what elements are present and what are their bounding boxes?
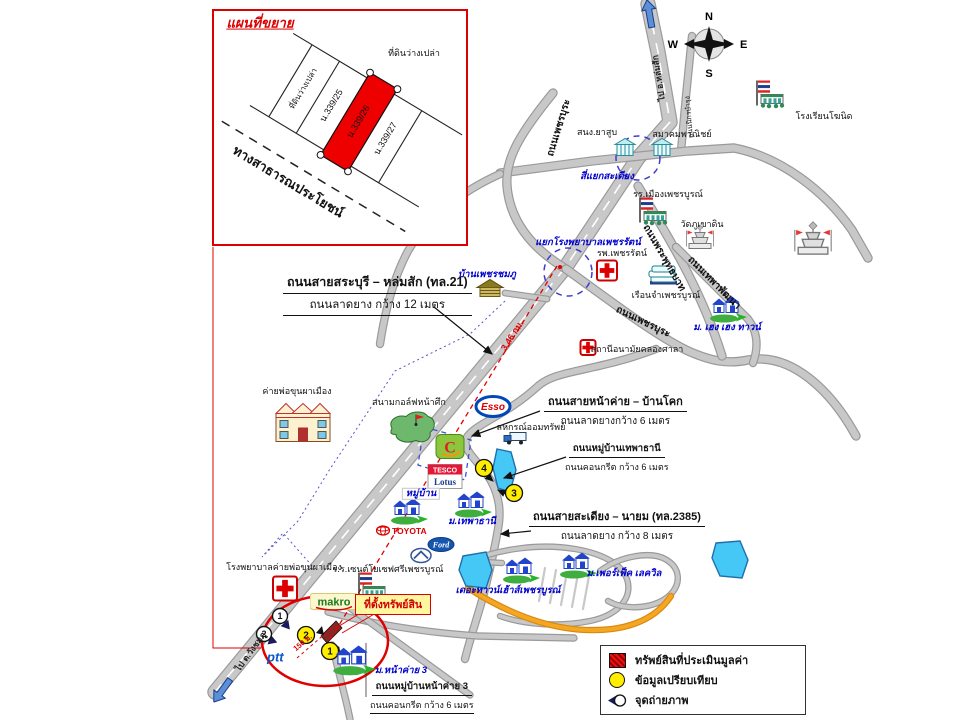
callout-sadiang-nayom: ถนนสายสะเดียง – นายม (ทล.2385)ถนนลาดยาง … (529, 507, 705, 544)
measure-tick-1 (316, 626, 324, 635)
phetcharat-hospital-icon (596, 260, 618, 287)
legend-red-hatch-swatch (607, 653, 627, 668)
thephathani-label: ม.เทพาธานี (448, 517, 496, 527)
legend-camera-icon (607, 693, 627, 708)
comparison-point-3: 3 (506, 485, 523, 502)
callout-nakhlai3-road-title: ถนนหมู่บ้านหน้าค่าย 3 (372, 679, 472, 696)
legend-yellow-circle-swatch (607, 672, 627, 688)
map-base-svg: 432112 N (0, 0, 960, 720)
svg-text:ptt: ptt (266, 650, 284, 665)
sadiang-intersection-label: สี่แยกสะเดียง (580, 172, 634, 182)
arrow-callout-4 (501, 531, 531, 534)
compass-w: W (668, 39, 679, 51)
callout-nakhlai-bankok: ถนนสายหน้าค่าย – บ้านโคกถนนลาดยางกว้าง 6… (544, 392, 687, 429)
bigc-logo: C (435, 434, 465, 465)
svg-text:C: C (444, 440, 456, 457)
comparison-point-4: 4 (476, 460, 493, 477)
phetcharat-junction-label: แยกโรงพยาบาลเพชรรัตน์ (535, 238, 640, 248)
subject-property-plot (321, 621, 342, 643)
phetcharat-hospital-label: รพ.เพชรรัตน์ (597, 249, 647, 259)
golf-course-icon (386, 407, 438, 452)
callout-nakhlai-bankok-title: ถนนสายหน้าค่าย – บ้านโคก (544, 392, 687, 412)
pond-2 (459, 552, 492, 588)
compass-n: N (705, 11, 713, 23)
legend-item: จุดถ่ายภาพ (607, 690, 799, 710)
svg-text:TOYOTA: TOYOTA (392, 526, 427, 536)
khosit-school-label: โรงเรียนโฆนิด (796, 112, 853, 122)
khosit-school-icon (753, 79, 787, 114)
ptt-logo: ptt (265, 648, 295, 671)
camp-building-icon (274, 400, 332, 451)
callout-nakhlai-bankok-subtitle: ถนนลาดยางกว้าง 6 เมตร (544, 412, 687, 429)
svg-text:4: 4 (481, 463, 487, 474)
svg-text:Ford: Ford (432, 541, 450, 550)
junction-red-dot (558, 265, 562, 269)
legend-item-label: ทรัพย์สินที่ประเมินมูลค่า (635, 651, 748, 669)
callout-saraburi-lomsak-subtitle: ถนนลาดยาง กว้าง 12 เมตร (283, 294, 472, 316)
callout-saraburi-lomsak: ถนนสายสระบุรี – หล่มสัก (ทล.21)ถนนลาดยาง… (283, 272, 472, 316)
heng-heng-town-label: ม. เฮง เฮง ทาวน์ (693, 323, 761, 333)
inset-vacant-land-top: ที่ดินว่างเปล่า (388, 49, 440, 59)
khlongsala-clinic-label: สถานีอนามัยคลองศาลา (591, 345, 684, 355)
mueang-phetchabun-school-icon (636, 196, 670, 231)
commerce-assoc-label: สมาคมพาณิชย์ (652, 130, 711, 140)
nakhlai3-label: ม.หน้าค่าย 3 (375, 666, 427, 676)
svg-text:Esso: Esso (481, 402, 505, 413)
inset-title: แผนที่ขยาย (226, 17, 293, 32)
camp-hospital-icon (272, 576, 298, 607)
legend-item-label: จุดถ่ายภาพ (635, 691, 689, 709)
townhouse-icon (502, 554, 540, 589)
callout-thephathani-village-road-subtitle: ถนนคอนกรีต กว้าง 6 เมตร (565, 458, 669, 474)
golf-label: สนามกอล์ฟหน้าศึก (372, 398, 446, 408)
legend: ทรัพย์สินที่ประเมินมูลค่าข้อมูลเปรียบเที… (600, 645, 806, 715)
svg-text:1: 1 (277, 611, 282, 621)
toyota-logo: TOYOTA (376, 524, 432, 543)
inset-leader-line (213, 247, 261, 648)
svg-text:TESCO: TESCO (433, 468, 458, 475)
camp-label: ค่ายพ่อขุนผาเมือง (262, 387, 331, 397)
callout-nakhlai3-road: ถนนหมู่บ้านหน้าค่าย 3ถนนคอนกรีต กว้าง 6 … (370, 676, 474, 714)
svg-text:makro: makro (317, 597, 350, 609)
wat-phukhaodin-label: วัดภูเขาดิน (680, 220, 723, 230)
ban-phetchomphu-icon (475, 278, 505, 305)
muban-label: หมู่บ้าน (402, 488, 440, 500)
compass-s: S (705, 68, 712, 80)
stupa-icon (790, 220, 836, 267)
callout-saraburi-lomsak-title: ถนนสายสระบุรี – หล่มสัก (ทล.21) (283, 272, 472, 294)
map-canvas: 432112 N (0, 0, 960, 720)
callout-thephathani-village-road-title: ถนนหมู่บ้านเทพาธานี (569, 441, 665, 458)
camp-hospital-label: โรงพยาบาลค่ายพ่อขุนผาเมือง (226, 563, 342, 573)
property-location-callout: ที่ตั้งทรัพย์สิน (355, 594, 431, 615)
esso-logo: Esso (474, 395, 512, 424)
stjoseph-school-label: ร.ร.เซนต์โยเซฟศรีเพชรบูรณ์ (333, 565, 444, 575)
tobacco-office-icon (612, 137, 638, 164)
legend-item: ข้อมูลเปรียบเทียบ (607, 670, 799, 690)
legend-item: ทรัพย์สินที่ประเมินมูลค่า (607, 650, 799, 670)
perfect-lakeville-label: ม.เพอร์เฟ็ค เลควิล (587, 569, 662, 579)
makro-logo: makro (310, 592, 358, 617)
legend-item-label: ข้อมูลเปรียบเทียบ (635, 671, 718, 689)
prison-label: เรือนจำเพชรบูรณ์ (632, 291, 701, 301)
svg-text:3: 3 (511, 488, 517, 499)
pond-3 (712, 541, 748, 578)
callout-nakhlai3-road-subtitle: ถนนคอนกรีต กว้าง 6 เมตร (370, 696, 474, 714)
svg-text:Lotus: Lotus (434, 477, 457, 487)
tobacco-office-label: สนง.ยาสูบ (577, 128, 617, 138)
commerce-assoc-icon (649, 137, 675, 164)
callout-sadiang-nayom-subtitle: ถนนลาดยาง กว้าง 8 เมตร (529, 527, 705, 544)
callout-thephathani-village-road: ถนนหมู่บ้านเทพาธานีถนนคอนกรีต กว้าง 6 เม… (565, 438, 669, 474)
mueang-school-label: รร.เมืองเพชรบูรณ์ (633, 190, 703, 200)
compass-e: E (740, 39, 747, 51)
callout-sadiang-nayom-title: ถนนสายสะเดียง – นายม (ทล.2385) (529, 507, 705, 527)
townhouse-label: เดอะทาวน์เฮ้าส์เพชรบูรณ์ (456, 586, 561, 596)
compass-rose: N S W E (668, 11, 748, 80)
